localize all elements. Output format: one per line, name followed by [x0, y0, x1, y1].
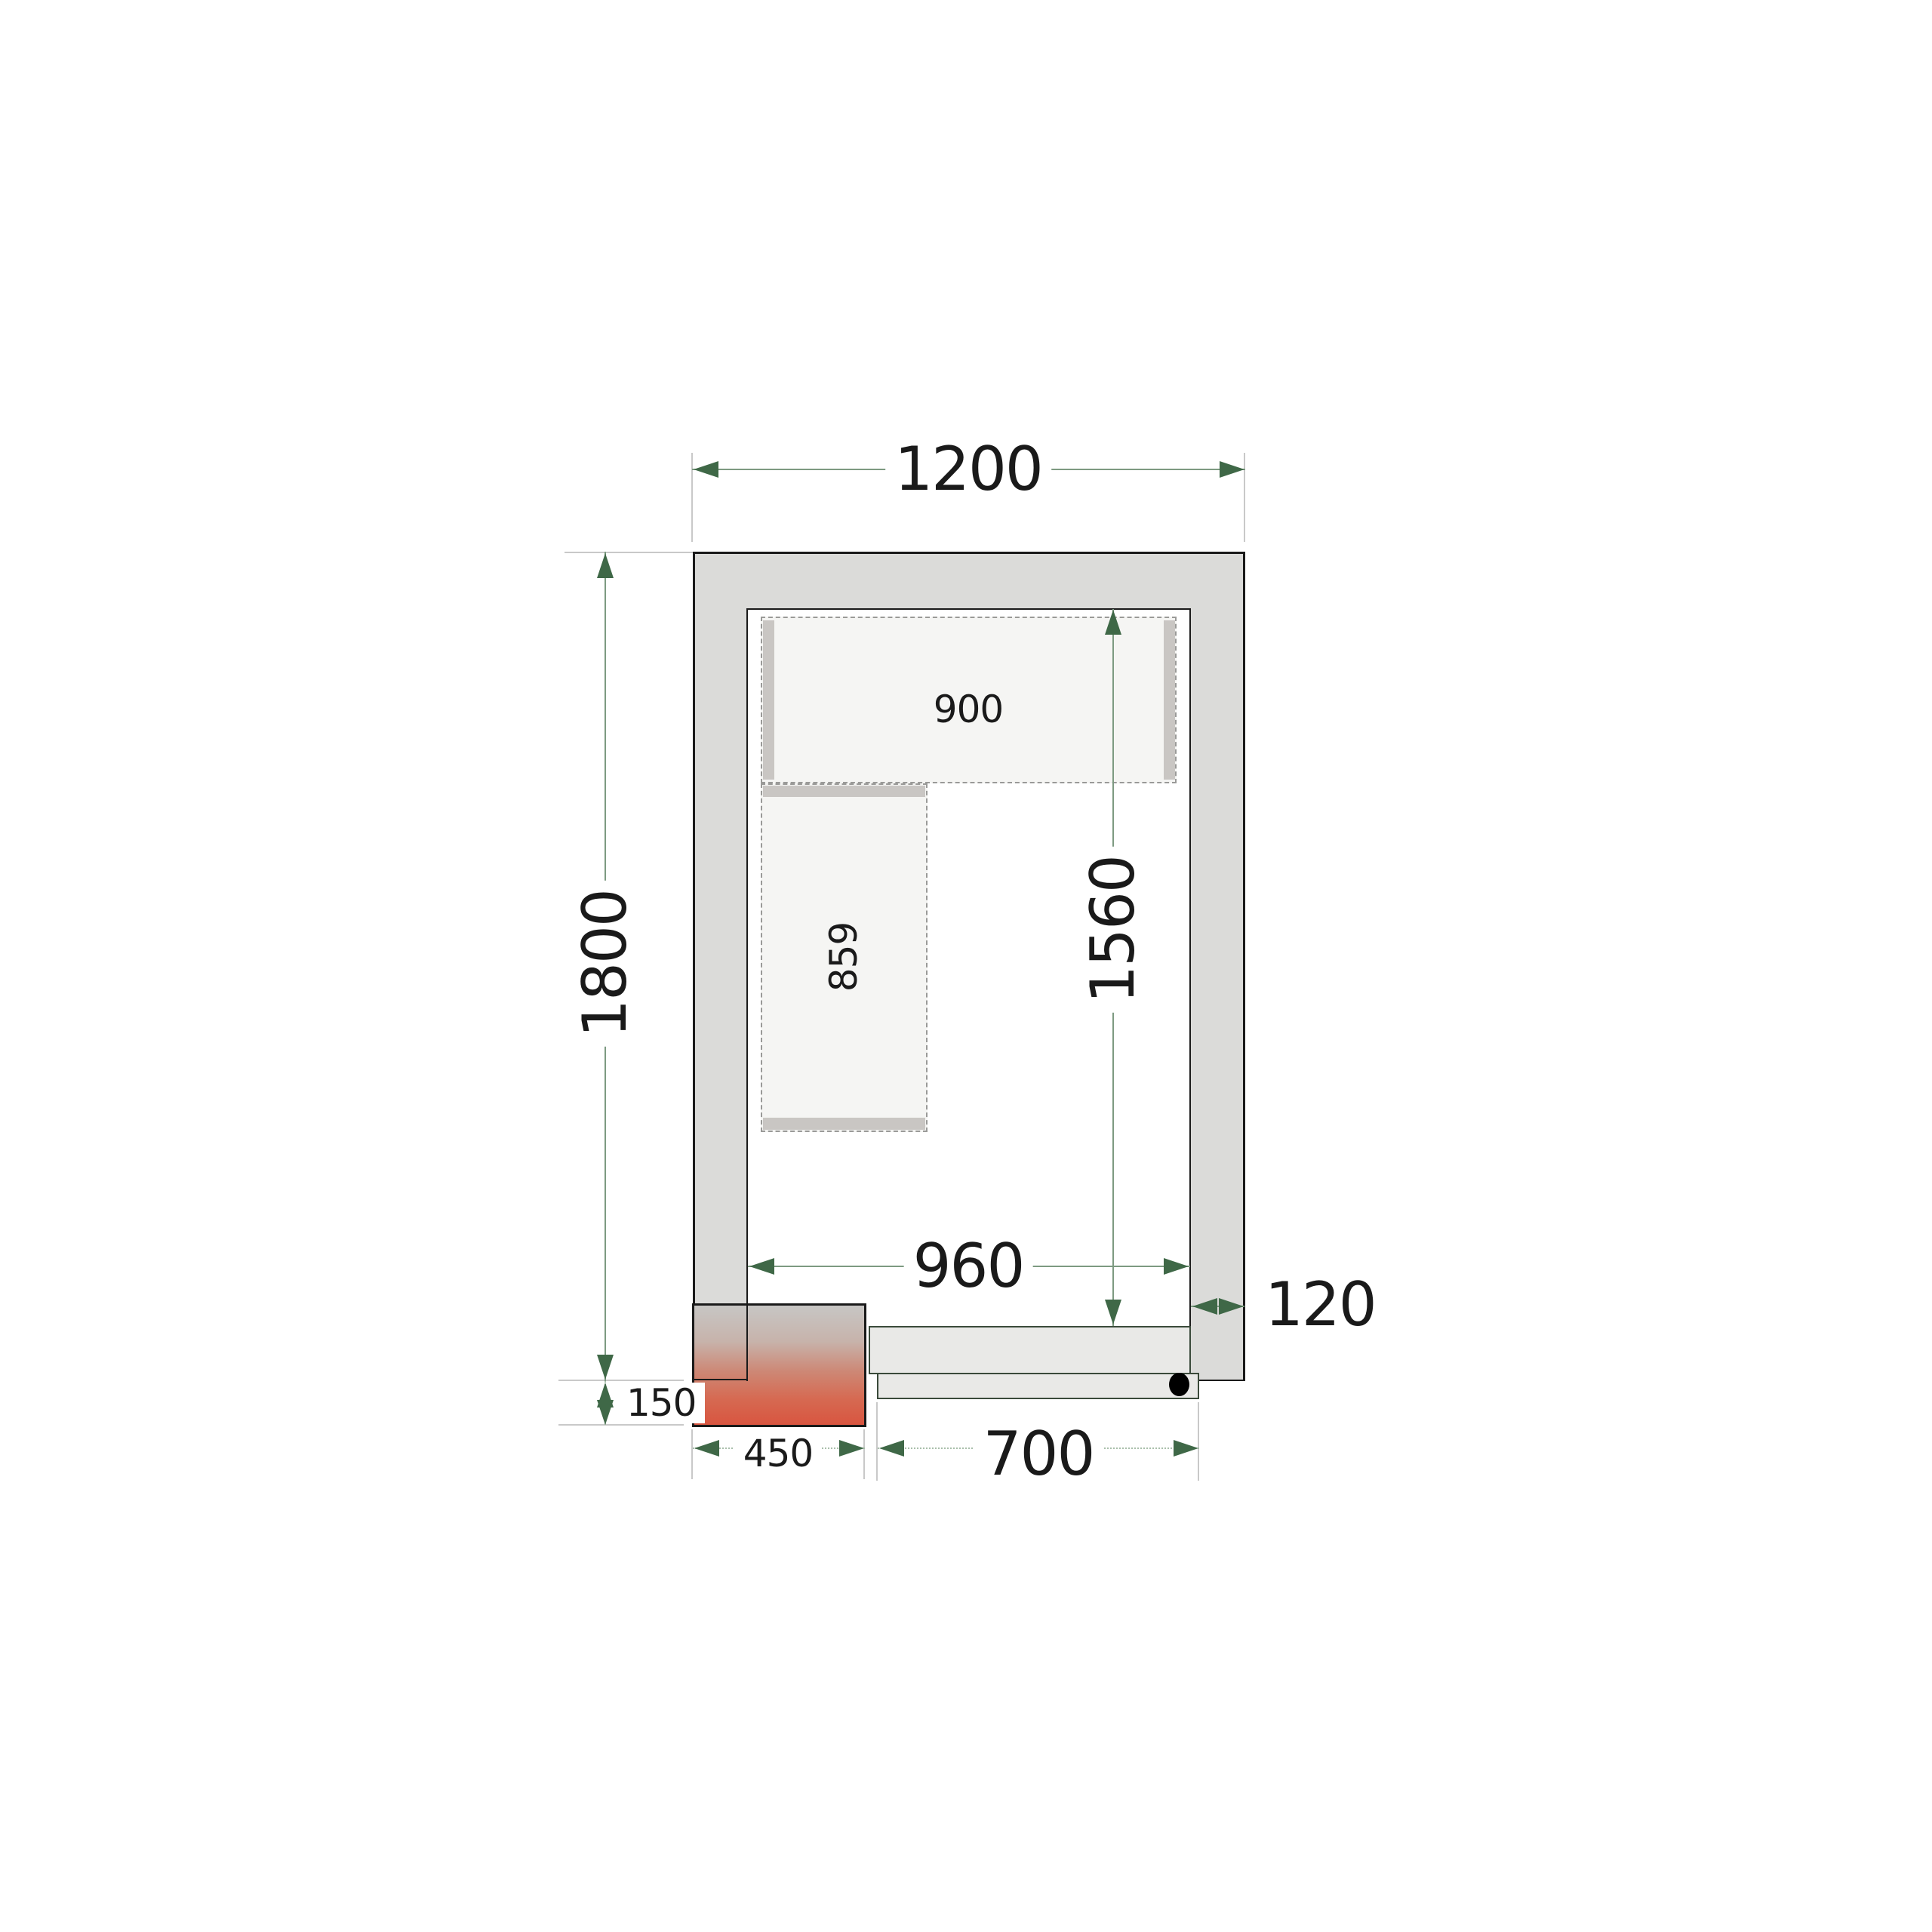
dim-label-wall-thickness: 120	[1265, 1275, 1376, 1335]
left-shelf-top-support	[763, 786, 925, 797]
dimension-arrow-left-icon	[694, 1440, 719, 1457]
top-shelf-left-support	[763, 620, 774, 780]
dimension-arrow-left-icon	[1192, 1298, 1217, 1315]
wall-left	[693, 608, 748, 1381]
dimension-arrow-up-icon	[597, 553, 614, 578]
dimension-arrow-right-icon	[1219, 1298, 1244, 1315]
left-shelf-bottom-support	[763, 1118, 925, 1130]
top-shelf-right-support	[1164, 620, 1175, 780]
top-shelf-length-label: 900	[934, 691, 1003, 728]
dimension-arrow-right-icon	[1164, 1258, 1189, 1275]
dimension-arrow-left-icon	[879, 1440, 904, 1457]
dim-label-exterior-width: 1200	[885, 438, 1051, 501]
door-leaf	[869, 1326, 1191, 1374]
wall-right	[1189, 608, 1245, 1381]
dimension-arrow-right-icon	[839, 1440, 864, 1457]
cold-room-plan-drawing: 1200 1800 1560 960 120 150 450 700 900 8…	[0, 0, 1932, 1932]
dimension-arrow-down-icon	[597, 1400, 614, 1425]
dimension-arrow-down-icon	[597, 1355, 614, 1380]
ext-line	[691, 453, 693, 542]
dimension-arrow-right-icon	[1174, 1440, 1198, 1457]
dim-label-door-width: 700	[974, 1423, 1103, 1486]
left-shelf-length-label: 859	[825, 922, 863, 992]
door-handle-dot	[1169, 1373, 1189, 1396]
dimension-arrow-left-icon	[694, 461, 718, 478]
dim-label-unit-width: 450	[734, 1433, 822, 1474]
dim-label-unit-protrusion: 150	[617, 1383, 705, 1423]
dim-label-interior-depth: 1560	[1081, 847, 1145, 1013]
wall-top	[693, 552, 1245, 608]
cooling-unit-wall-overlap-line-v	[746, 1303, 748, 1381]
ext-line	[876, 1402, 878, 1481]
dimension-arrow-up-icon	[1105, 610, 1121, 635]
ext-line	[565, 552, 693, 553]
dim-label-exterior-depth: 1800	[574, 881, 637, 1047]
door-sill	[877, 1373, 1199, 1399]
dimension-arrow-down-icon	[1105, 1300, 1121, 1324]
dimension-arrow-left-icon	[749, 1258, 774, 1275]
dim-label-interior-width: 960	[904, 1235, 1033, 1298]
dimension-arrow-right-icon	[1220, 461, 1244, 478]
wall-top-inner-face-line	[748, 608, 1189, 610]
ext-line	[691, 1429, 693, 1479]
cooling-unit-wall-overlap-line-h	[692, 1379, 748, 1380]
cooling-unit	[692, 1303, 866, 1427]
